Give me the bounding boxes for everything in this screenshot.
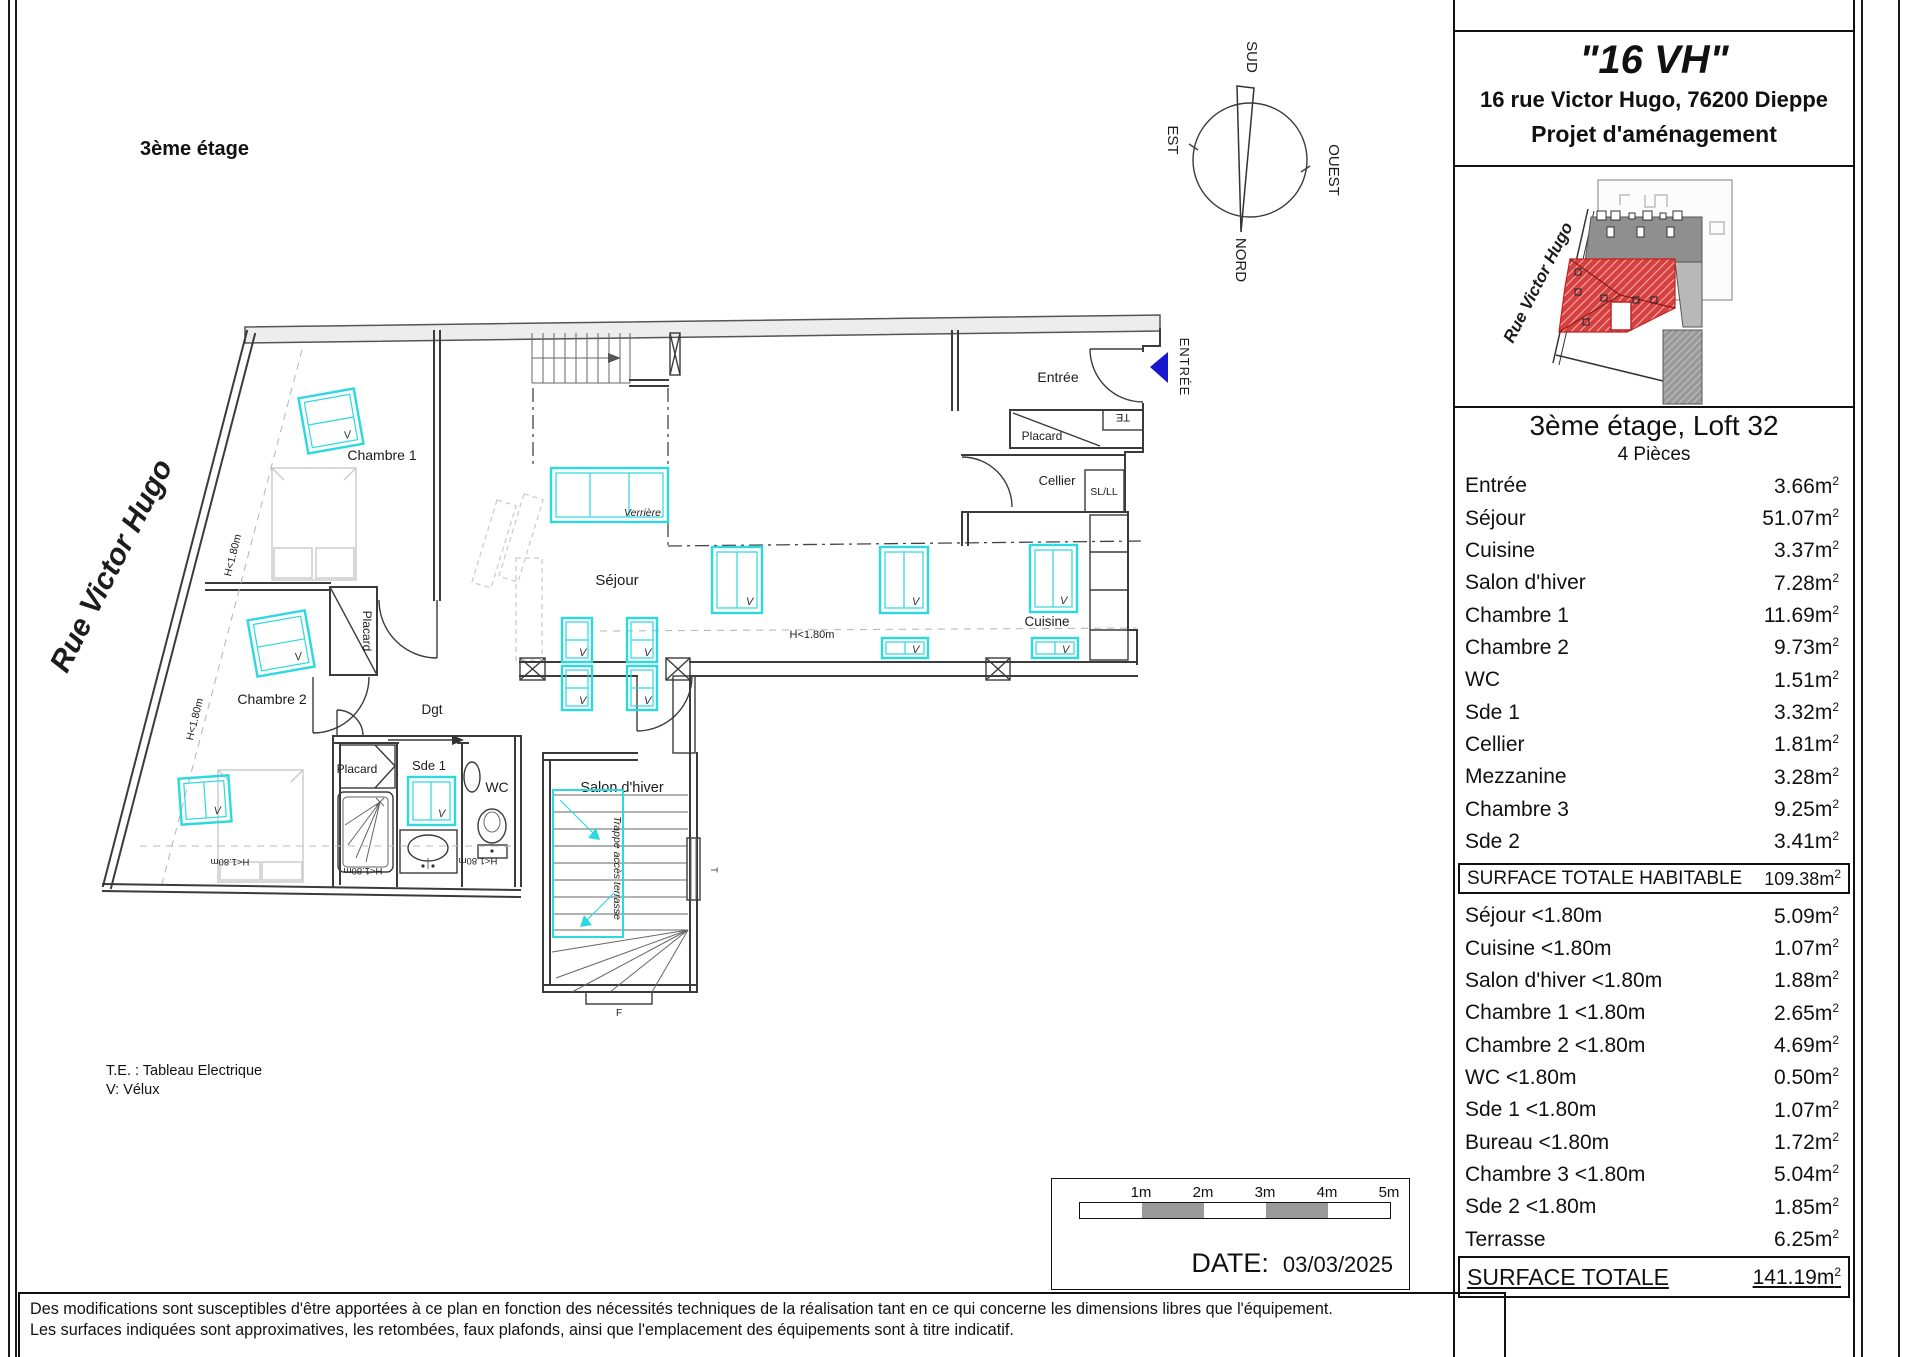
area-value: 4.69m2: [1774, 1033, 1839, 1058]
room-entree: Entrée: [1037, 369, 1078, 385]
area-row: Chambre 39.25m2: [1465, 793, 1839, 825]
area-value: 3.37m2: [1774, 538, 1839, 563]
velux-window: V: [712, 547, 762, 613]
velux-window: V: [880, 547, 928, 613]
area-row: Sde 1 <1.80m1.07m2: [1465, 1094, 1839, 1126]
area-value: 3.41m2: [1774, 829, 1839, 854]
area-value: 5.04m2: [1774, 1162, 1839, 1187]
date-label: DATE:: [1191, 1248, 1269, 1279]
closet-chambre-label: Placard: [360, 611, 374, 652]
area-row: Sde 23.41m2: [1465, 826, 1839, 858]
window-tag-f: F: [616, 1008, 622, 1019]
street-label: Rue Victor Hugo: [44, 454, 180, 677]
height-limit: H<1.80m: [211, 856, 250, 867]
velux-window: V: [627, 618, 657, 662]
trap-label: Trappe accès terrasse: [611, 816, 623, 920]
page: 3ème étage SUD EST OUEST NORD Rue Victor…: [0, 0, 1920, 1357]
svg-text:V: V: [644, 695, 653, 707]
height-limit: H<1.80m: [344, 865, 383, 876]
area-row: Chambre 1 <1.80m2.65m2: [1465, 997, 1839, 1029]
area-label: Salon d'hiver <1.80m: [1465, 969, 1662, 993]
svg-text:V: V: [438, 808, 447, 820]
unit-subtitle: 4 Pièces: [1455, 444, 1853, 466]
entry-arrow-label: ENTRÉE: [1177, 338, 1192, 397]
area-row: Chambre 2 <1.80m4.69m2: [1465, 1029, 1839, 1061]
height-limit: H<1.80m: [222, 533, 244, 578]
area-row: WC <1.80m0.50m2: [1465, 1062, 1839, 1094]
area-label: Cuisine <1.80m: [1465, 937, 1612, 961]
surface-total-label: SURFACE TOTALE: [1467, 1264, 1669, 1291]
velux-window: V: [562, 618, 592, 662]
area-row: Mezzanine3.28m2: [1465, 761, 1839, 793]
room-wc: WC: [485, 779, 508, 795]
area-row: Salon d'hiver <1.80m1.88m2: [1465, 965, 1839, 997]
svg-text:V: V: [343, 429, 354, 442]
area-value: 1.72m2: [1774, 1130, 1839, 1155]
svg-text:V: V: [294, 650, 305, 663]
washer-tag: SL/LL: [1090, 486, 1118, 498]
project-title: "16 VH": [1455, 38, 1853, 83]
area-value: 6.25m2: [1774, 1227, 1839, 1252]
floor-plan: SUD EST OUEST NORD Rue Victor Hugo: [0, 0, 1450, 1357]
area-label: Sde 1: [1465, 701, 1520, 725]
area-label: WC: [1465, 668, 1500, 692]
area-value: 3.28m2: [1774, 765, 1839, 790]
area-label: Chambre 2: [1465, 636, 1569, 660]
area-row: Séjour <1.80m5.09m2: [1465, 900, 1839, 932]
area-row: Séjour51.07m2: [1465, 502, 1839, 534]
legend-te: T.E. : Tableau Electrique: [106, 1062, 262, 1081]
area-label: Entrée: [1465, 474, 1527, 498]
area-label: Bureau <1.80m: [1465, 1131, 1609, 1155]
svg-text:V: V: [579, 695, 588, 707]
title-block: "16 VH" 16 rue Victor Hugo, 76200 Dieppe…: [1455, 30, 1853, 167]
post-icon: [666, 658, 690, 680]
svg-text:V: V: [213, 805, 223, 818]
closet-bathroom-label: Placard: [337, 762, 378, 776]
compass-nord: NORD: [1232, 238, 1249, 282]
velux-window: V: [408, 777, 455, 825]
velux-window: V: [1032, 638, 1078, 658]
closet-entree-label: Placard: [1022, 429, 1063, 443]
svg-text:V: V: [1060, 595, 1069, 607]
height-limit: H<1.80m: [184, 697, 206, 742]
disclaimer: Des modifications sont susceptibles d'êt…: [18, 1292, 1506, 1357]
velux-window: V: [1030, 545, 1077, 612]
velux-window: V: [627, 666, 657, 710]
area-row: Sde 2 <1.80m1.85m2: [1465, 1191, 1839, 1223]
area-row: Cuisine <1.80m1.07m2: [1465, 932, 1839, 964]
unit-title: 3ème étage, Loft 32: [1455, 410, 1853, 442]
area-label: Séjour: [1465, 507, 1526, 531]
room-cellier: Cellier: [1039, 473, 1077, 488]
area-value: 51.07m2: [1762, 506, 1839, 531]
room-sejour: Séjour: [595, 572, 638, 589]
area-label: Chambre 1 <1.80m: [1465, 1001, 1645, 1025]
area-label: Sde 2: [1465, 830, 1520, 854]
page-border-right-inner: [1861, 0, 1863, 1357]
roof-map: Rue Victor Hugo: [1455, 167, 1855, 406]
washbasin-icon: [400, 830, 457, 873]
area-value: 1.51m2: [1774, 668, 1839, 693]
velux-window: V: [562, 666, 592, 710]
window-tag: T: [709, 867, 719, 873]
date-box: DATE: 03/03/2025: [1051, 1178, 1410, 1290]
area-label: Terrasse: [1465, 1228, 1546, 1252]
area-value: 9.25m2: [1774, 797, 1839, 822]
legend-velux: V: Vélux: [106, 1081, 262, 1100]
area-table-low: Séjour <1.80m5.09m2Cuisine <1.80m1.07m2S…: [1465, 900, 1839, 1256]
svg-text:V: V: [912, 596, 921, 608]
area-value: 2.65m2: [1774, 1001, 1839, 1026]
area-value: 1.81m2: [1774, 732, 1839, 757]
height-limit: H<1.80m: [459, 855, 498, 866]
area-label: Sde 1 <1.80m: [1465, 1098, 1596, 1122]
area-value: 1.85m2: [1774, 1195, 1839, 1220]
habitable-total-box: SURFACE TOTALE HABITABLE 109.38m2: [1458, 863, 1850, 894]
location-map: Rue Victor Hugo: [1455, 167, 1853, 408]
legend: T.E. : Tableau Electrique V: Vélux: [106, 1062, 262, 1100]
area-value: 11.69m2: [1764, 603, 1839, 628]
page-border-right-outer: [1898, 0, 1900, 1357]
disclaimer-line2: Les surfaces indiquées sont approximativ…: [30, 1320, 1494, 1341]
area-value: 1.07m2: [1774, 1098, 1839, 1123]
area-label: Cuisine: [1465, 539, 1535, 563]
verriere-label: Verrière: [624, 507, 661, 519]
area-label: Chambre 2 <1.80m: [1465, 1034, 1645, 1058]
area-row: Terrasse6.25m2: [1465, 1223, 1839, 1255]
area-value: 3.32m2: [1774, 700, 1839, 725]
area-row: Sde 13.32m2: [1465, 696, 1839, 728]
area-label: WC <1.80m: [1465, 1066, 1576, 1090]
area-value: 1.07m2: [1774, 936, 1839, 961]
area-value: 3.66m2: [1774, 474, 1839, 499]
svg-text:V: V: [746, 596, 755, 608]
compass-rose: SUD EST OUEST NORD: [1164, 41, 1342, 282]
area-value: 9.73m2: [1774, 635, 1839, 660]
area-value: 7.28m2: [1774, 571, 1839, 596]
date-value: 03/03/2025: [1283, 1252, 1393, 1278]
area-label: Chambre 1: [1465, 604, 1569, 628]
surface-total-value: 141.19m2: [1753, 1265, 1841, 1290]
area-label: Séjour <1.80m: [1465, 904, 1602, 928]
area-row: Chambre 29.73m2: [1465, 632, 1839, 664]
electrical-panel-tag: TE: [1116, 411, 1130, 423]
toilet-icon: [464, 762, 507, 858]
info-panel: "16 VH" 16 rue Victor Hugo, 76200 Dieppe…: [1453, 0, 1855, 1357]
svg-text:V: V: [579, 647, 588, 659]
compass-sud: SUD: [1243, 41, 1260, 73]
top-wall: [245, 315, 1160, 343]
room-sde1: Sde 1: [412, 758, 446, 773]
room-chambre2: Chambre 2: [237, 691, 306, 707]
habitable-value: 109.38m2: [1764, 867, 1841, 890]
area-row: Cuisine3.37m2: [1465, 535, 1839, 567]
velux-window: V: [882, 638, 928, 658]
velux-window: V: [299, 389, 364, 454]
project-address: 16 rue Victor Hugo, 76200 Dieppe: [1455, 87, 1853, 113]
area-row: Chambre 111.69m2: [1465, 599, 1839, 631]
room-dgt: Dgt: [421, 702, 442, 717]
area-row: WC1.51m2: [1465, 664, 1839, 696]
stairs-mezzanine: [532, 333, 680, 386]
habitable-label: SURFACE TOTALE HABITABLE: [1467, 868, 1742, 890]
area-row: Bureau <1.80m1.72m2: [1465, 1126, 1839, 1158]
area-value: 1.88m2: [1774, 968, 1839, 993]
svg-text:V: V: [644, 647, 653, 659]
surface-total-box: SURFACE TOTALE 141.19m2: [1458, 1256, 1850, 1298]
area-label: Mezzanine: [1465, 765, 1567, 789]
area-label: Chambre 3 <1.80m: [1465, 1163, 1645, 1187]
window-icon: [687, 838, 700, 900]
velux-window: V: [248, 610, 315, 676]
room-chambre1: Chambre 1: [347, 447, 416, 463]
area-label: Sde 2 <1.80m: [1465, 1195, 1596, 1219]
area-row: Chambre 3 <1.80m5.04m2: [1465, 1159, 1839, 1191]
kitchen-counter: [1090, 515, 1128, 660]
area-row: Salon d'hiver7.28m2: [1465, 567, 1839, 599]
area-table-main: Entrée3.66m2Séjour51.07m2Cuisine3.37m2Sa…: [1465, 470, 1839, 858]
area-label: Cellier: [1465, 733, 1525, 757]
area-row: Cellier1.81m2: [1465, 729, 1839, 761]
entry-arrow-icon: [1150, 352, 1168, 383]
compass-ouest: OUEST: [1325, 144, 1342, 196]
disclaimer-line1: Des modifications sont susceptibles d'êt…: [30, 1299, 1494, 1320]
height-limit: H<1.80m: [790, 629, 835, 641]
area-row: Entrée3.66m2: [1465, 470, 1839, 502]
area-label: Chambre 3: [1465, 798, 1569, 822]
area-value: 5.09m2: [1774, 904, 1839, 929]
area-value: 0.50m2: [1774, 1065, 1839, 1090]
area-label: Salon d'hiver: [1465, 571, 1586, 595]
compass-est: EST: [1164, 125, 1181, 154]
bed-chambre1: [272, 468, 356, 580]
room-cuisine: Cuisine: [1024, 614, 1069, 629]
project-type: Projet d'aménagement: [1455, 121, 1853, 148]
shower-icon: [338, 792, 393, 872]
velux-window: V: [178, 775, 231, 824]
